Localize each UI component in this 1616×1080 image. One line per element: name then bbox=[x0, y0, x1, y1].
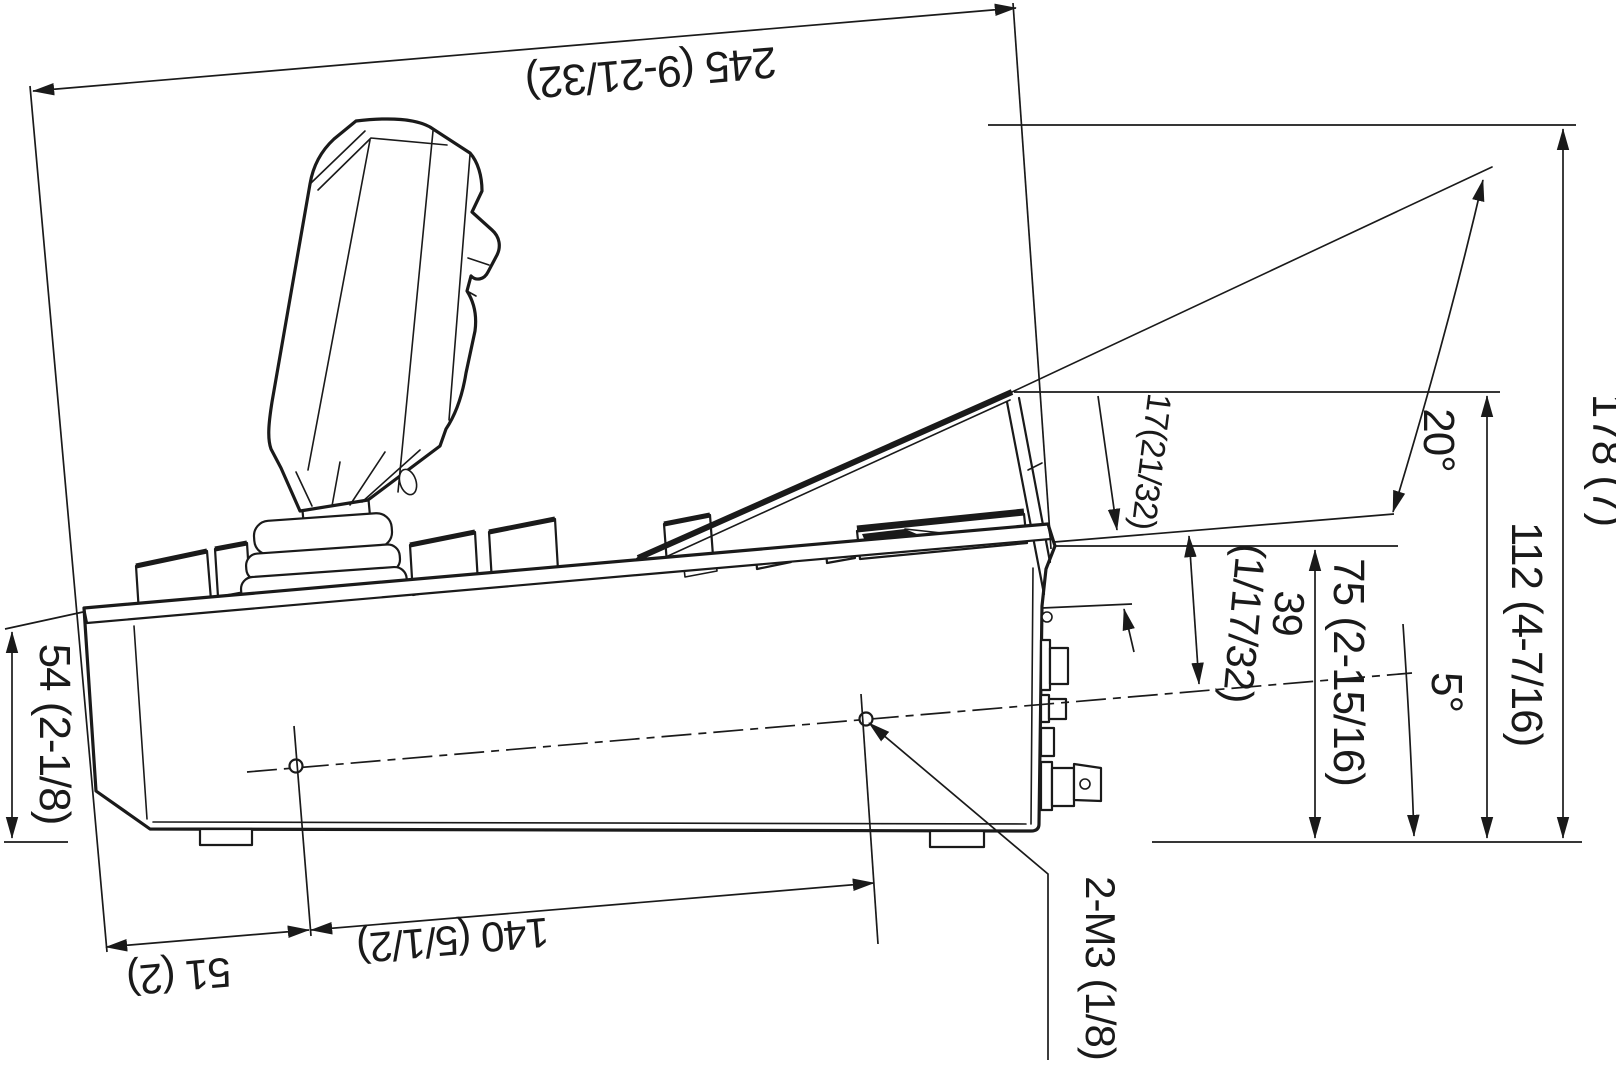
leader-line-m3 bbox=[869, 723, 1048, 1060]
angle-arc-5 bbox=[1403, 624, 1414, 836]
dimension-lines bbox=[12, 8, 1563, 1060]
label-height-rear: 75 (2-15/16) bbox=[1324, 558, 1373, 786]
annotations: 245 (9-21/32) 178 (7) 112 (4-7/16) 75 (2… bbox=[4, 3, 1616, 1060]
label-screw-spec: 2-M3 (1/8) bbox=[1077, 876, 1124, 1060]
label-width-overall: 245 (9-21/32) bbox=[524, 37, 778, 108]
label-panel-gap: 17(21/32) bbox=[1124, 391, 1178, 531]
panel-extension-line bbox=[1012, 167, 1492, 392]
extension-lines bbox=[4, 3, 1582, 952]
label-height-panel-top: 112 (4-7/16) bbox=[1502, 522, 1551, 746]
label-height-overall: 178 (7) bbox=[1583, 394, 1616, 526]
dim-line-17-upper bbox=[1098, 396, 1117, 530]
foot bbox=[930, 831, 984, 847]
label-hole-front: 51 (2) bbox=[126, 949, 233, 1005]
connector-tab-hole bbox=[1080, 779, 1090, 789]
joystick-head bbox=[269, 119, 500, 511]
dim-line-245 bbox=[33, 8, 1016, 91]
label-dim-39-inches: (1/17/32) bbox=[1214, 542, 1275, 705]
mounting-hole bbox=[290, 760, 303, 773]
base-front-rim bbox=[84, 524, 1051, 623]
dim-line-17-lower bbox=[1124, 609, 1134, 652]
dimension-drawing-page: 245 (9-21/32) 178 (7) 112 (4-7/16) 75 (2… bbox=[0, 0, 1616, 1080]
lcd-support-bracket bbox=[1007, 398, 1050, 594]
foot bbox=[200, 829, 252, 845]
rear-screw bbox=[1042, 612, 1052, 622]
controller-side-view-drawing: 245 (9-21/32) 178 (7) 112 (4-7/16) 75 (2… bbox=[0, 0, 1616, 1080]
dim-line-51 bbox=[106, 930, 309, 947]
rear-connectors bbox=[1041, 612, 1101, 810]
label-angle-panel: 20° bbox=[1414, 408, 1463, 472]
label-angle-base: 5° bbox=[1422, 672, 1471, 712]
label-hole-spacing: 140 (5/1/2) bbox=[356, 909, 552, 973]
lcd-panel-edge bbox=[629, 167, 1492, 572]
dim-line-39 bbox=[1189, 536, 1199, 684]
label-height-front: 54 (2-1/8) bbox=[30, 644, 79, 825]
